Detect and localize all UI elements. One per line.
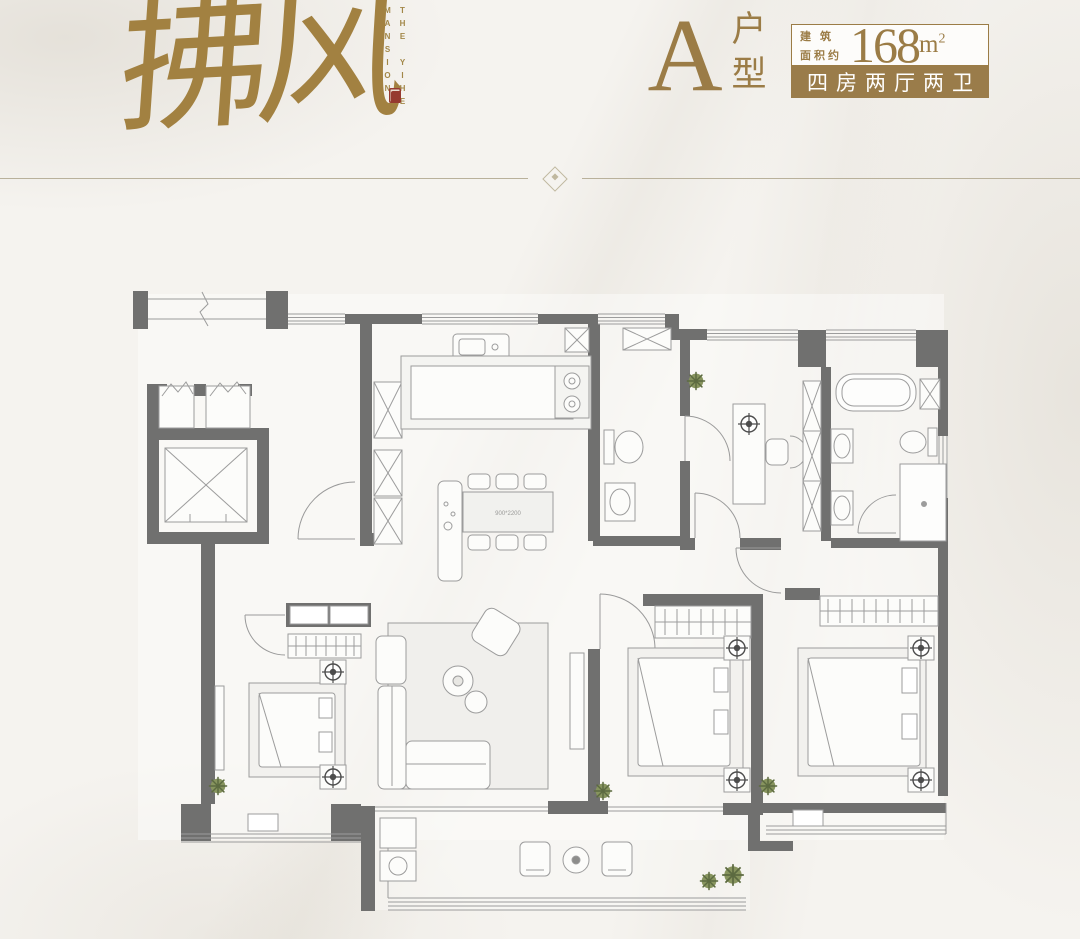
balcony-chair [602, 842, 632, 876]
divider-line-left [0, 178, 528, 179]
tv-console [215, 686, 224, 770]
sofa-corner [406, 741, 490, 789]
living-bedroom2-wall [588, 649, 600, 804]
linen-cabinet [920, 379, 940, 409]
area-unit: m2 [919, 31, 945, 59]
bath-wall [821, 367, 831, 541]
page: 拂风 MANSION THE YIHE A 户 型 建 筑 面积约 168 m2… [0, 0, 1080, 939]
left-exterior-wall [201, 544, 215, 804]
brand-calligraphy: 拂风 [111, 0, 405, 176]
pantry-cabinets [374, 382, 402, 544]
plant-icon [722, 864, 744, 886]
balcony-chair [520, 842, 550, 876]
bedroom2-3-wall [751, 594, 763, 806]
floor-plan-svg: 900*2200 [118, 286, 950, 926]
coffee-table [465, 691, 487, 713]
toilet-icon [604, 430, 643, 464]
red-seal-icon [389, 88, 401, 103]
bay-window-pillow [248, 814, 278, 831]
balcony-cabinet [380, 818, 416, 848]
balcony-cabinet [380, 851, 416, 881]
area-label: 建 筑 面积约 [800, 28, 842, 63]
bookshelf [803, 381, 821, 531]
corridor-wall-cap [133, 291, 148, 329]
shower-icon [900, 464, 946, 541]
tv-console [570, 653, 584, 749]
stove-icon [555, 366, 589, 418]
type-badge: 四房两厅两卫 [791, 66, 989, 98]
section-divider [0, 168, 1080, 190]
area-value: 168 [850, 20, 919, 70]
sofa-chaise [376, 636, 406, 684]
unit-type-char-bottom: 型 [729, 57, 769, 92]
dining-table-size-label: 900*2200 [495, 511, 521, 517]
pillar [798, 330, 826, 367]
guest-vanity-icon [605, 483, 635, 521]
unit-letter: A [640, 0, 730, 115]
floor-plan: 900*2200 [118, 286, 950, 926]
divider-line-right [582, 178, 1080, 179]
diamond-ornament-icon [542, 166, 567, 191]
fridge-icon [565, 328, 589, 352]
unit-type-label: 户 型 [729, 12, 769, 92]
bay-window-pillow [793, 810, 823, 826]
guest-bath-cabinet [623, 328, 671, 350]
right-exterior-wall [938, 367, 948, 796]
walk-in-closet [820, 596, 938, 626]
bathtub-icon [836, 374, 916, 411]
balcony-floor [368, 806, 750, 910]
pillar [916, 330, 948, 367]
area-box: 建 筑 面积约 168 m2 [791, 24, 989, 66]
unit-type-char-top: 户 [729, 12, 769, 47]
elevator-icon [165, 448, 247, 522]
balcony-left-wall [361, 806, 375, 911]
kitchen-island [438, 481, 462, 581]
foyer-wall [360, 324, 372, 544]
